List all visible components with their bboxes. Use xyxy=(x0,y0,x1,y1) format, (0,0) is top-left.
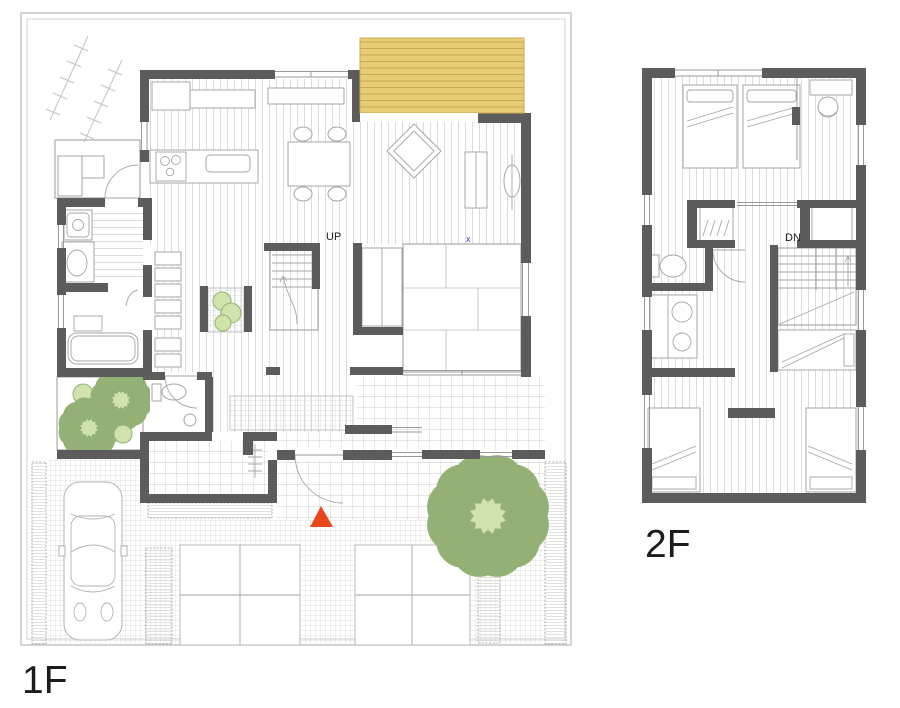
tree xyxy=(446,474,530,558)
hedge xyxy=(148,503,272,518)
kitchen-island xyxy=(150,150,258,183)
hedge xyxy=(478,566,500,643)
bed xyxy=(743,85,800,168)
closet-shelves xyxy=(155,252,181,367)
stairs-up-label: UP xyxy=(326,231,341,243)
plan-2f: DN xyxy=(642,68,866,503)
hedge xyxy=(32,462,46,644)
label-2f: 2F xyxy=(645,523,691,566)
bed xyxy=(778,330,856,370)
chair xyxy=(294,187,312,201)
fence-wall-dash xyxy=(422,450,480,459)
ground-hatch-icon xyxy=(46,36,122,142)
tatami-floor xyxy=(403,244,521,372)
stairs-down-label: DN xyxy=(785,232,801,244)
bed xyxy=(683,85,737,168)
washbasin-counter-2f xyxy=(650,295,697,358)
south-terrace-tiles xyxy=(357,377,545,450)
car xyxy=(59,482,127,640)
garden-bed xyxy=(57,377,143,450)
floor-plan-page: UP x xyxy=(0,0,900,708)
concrete-pad xyxy=(180,545,300,645)
courtyard xyxy=(208,288,244,332)
toilet xyxy=(660,255,686,277)
bed xyxy=(806,408,856,492)
tree xyxy=(68,407,110,449)
bed xyxy=(648,408,700,492)
hall-floor xyxy=(152,244,353,372)
site-plan-1f: UP x xyxy=(21,13,571,645)
shrub xyxy=(114,425,132,443)
closet xyxy=(700,206,733,242)
chair xyxy=(294,127,312,141)
door-swing xyxy=(105,165,138,198)
shrub xyxy=(215,315,231,331)
utility-fittings xyxy=(62,210,94,282)
bathtub xyxy=(68,333,138,364)
chair xyxy=(328,187,346,201)
wood-deck xyxy=(360,38,524,122)
floor-marker-x: x xyxy=(466,234,471,244)
chair xyxy=(328,127,346,141)
washing-machine xyxy=(64,210,92,240)
label-1f: 1F xyxy=(22,659,68,702)
hand-basin xyxy=(184,414,196,426)
tatami-closet xyxy=(362,248,402,326)
fence-wall-dash xyxy=(512,450,545,459)
hedge xyxy=(146,548,172,644)
closet xyxy=(812,206,852,242)
kitchen-sink xyxy=(206,155,250,172)
living-floor xyxy=(362,122,521,244)
dining-table xyxy=(288,142,350,186)
stool xyxy=(818,97,838,117)
genkan-tile-floor xyxy=(230,396,353,430)
pantry-fittings xyxy=(58,156,138,198)
hedge xyxy=(545,462,566,644)
floor-plan-image: UP x xyxy=(0,0,900,708)
